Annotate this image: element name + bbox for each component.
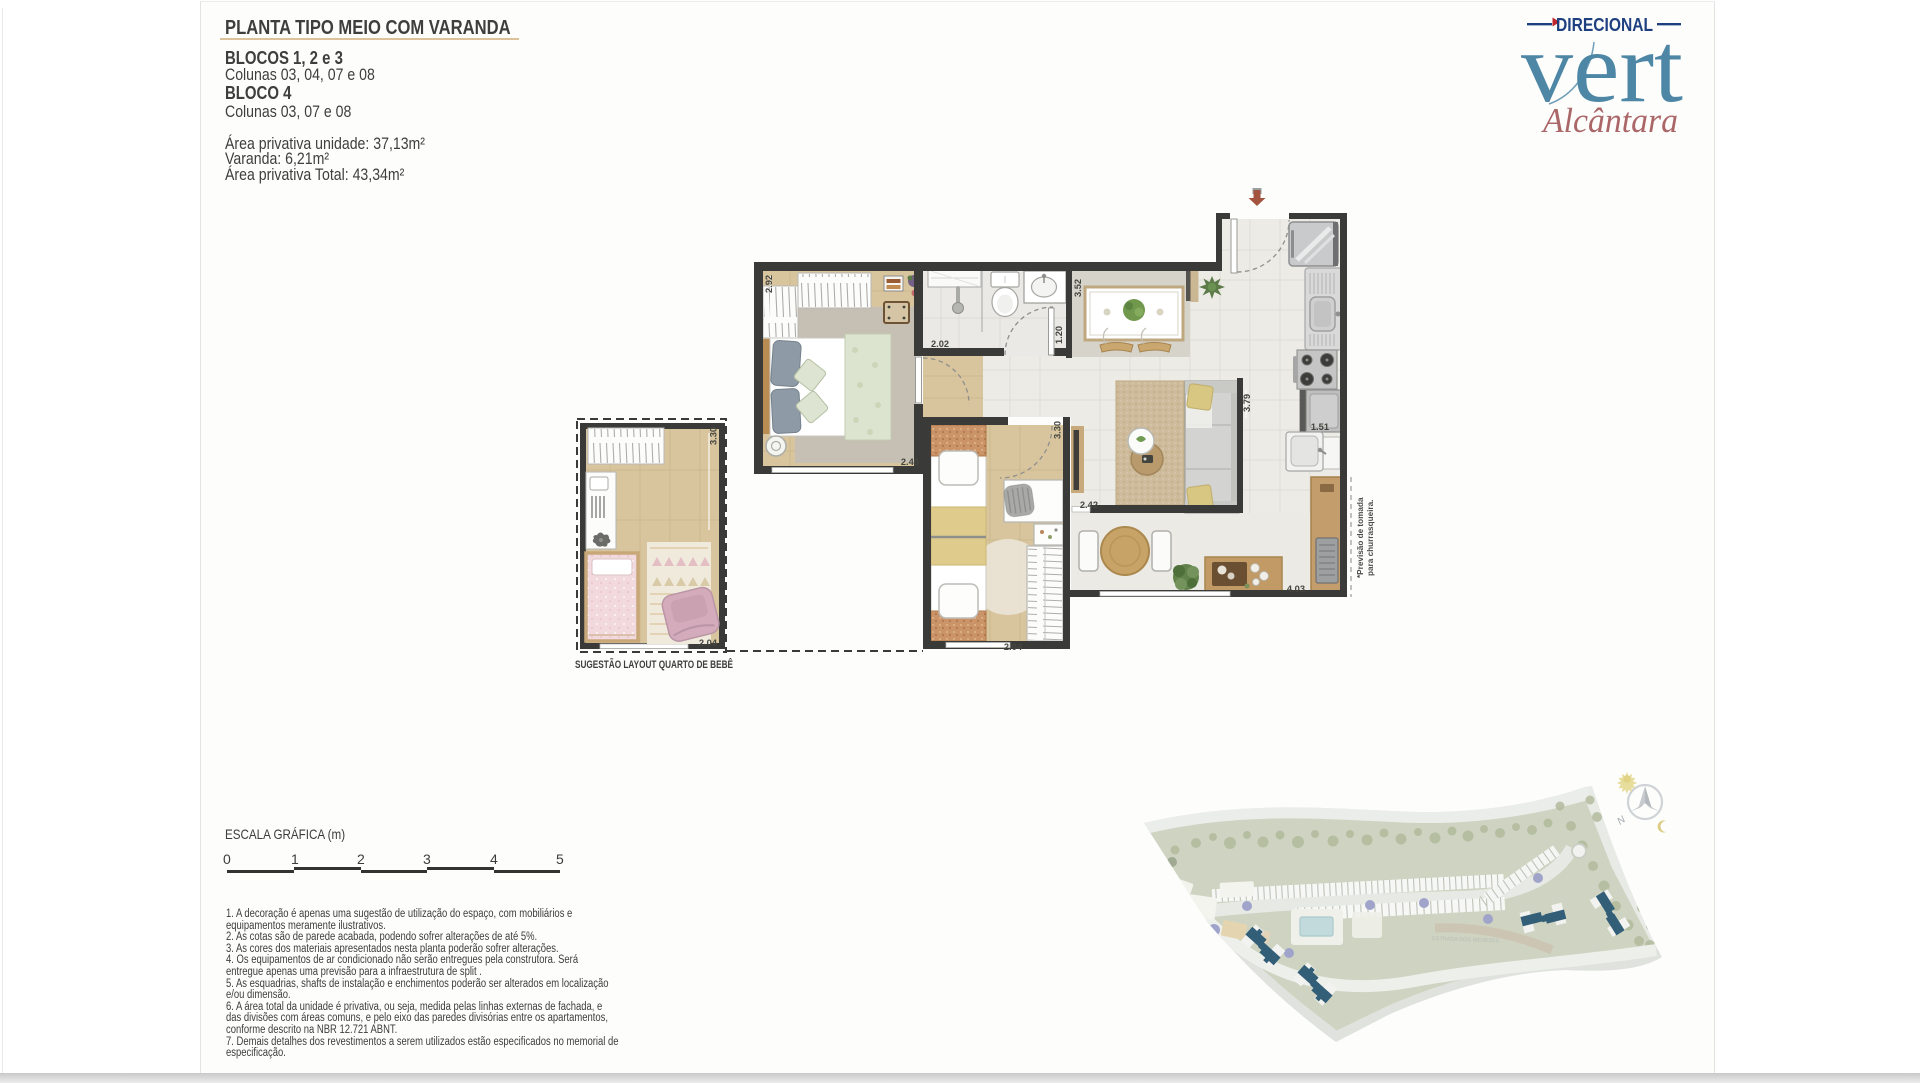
svg-text:2.04: 2.04 <box>1004 642 1023 652</box>
svg-text:3.52: 3.52 <box>1073 279 1083 297</box>
svg-text:4.03: 4.03 <box>1287 584 1305 594</box>
svg-text:2.42: 2.42 <box>1080 500 1098 510</box>
svg-text:2.40: 2.40 <box>901 457 919 467</box>
svg-text:2.92: 2.92 <box>764 275 774 293</box>
svg-text:SUGESTÃO LAYOUT QUARTO DE BEBÊ: SUGESTÃO LAYOUT QUARTO DE BEBÊ <box>575 658 733 671</box>
svg-text:3.79: 3.79 <box>1242 394 1252 412</box>
svg-text:2.02: 2.02 <box>931 339 949 349</box>
svg-text:1.20: 1.20 <box>1054 326 1064 344</box>
svg-text:2.04: 2.04 <box>699 638 718 648</box>
svg-text:1.51: 1.51 <box>1311 422 1329 432</box>
svg-text:N: N <box>1615 814 1628 828</box>
svg-text:Alcântara: Alcântara <box>1541 101 1678 140</box>
svg-text:3.30: 3.30 <box>709 427 719 445</box>
svg-text:3.30: 3.30 <box>1053 421 1063 439</box>
svg-text:*Previsão de tomada: *Previsão de tomada <box>1356 497 1365 578</box>
svg-text:para churrasqueira.: para churrasqueira. <box>1366 500 1375 576</box>
